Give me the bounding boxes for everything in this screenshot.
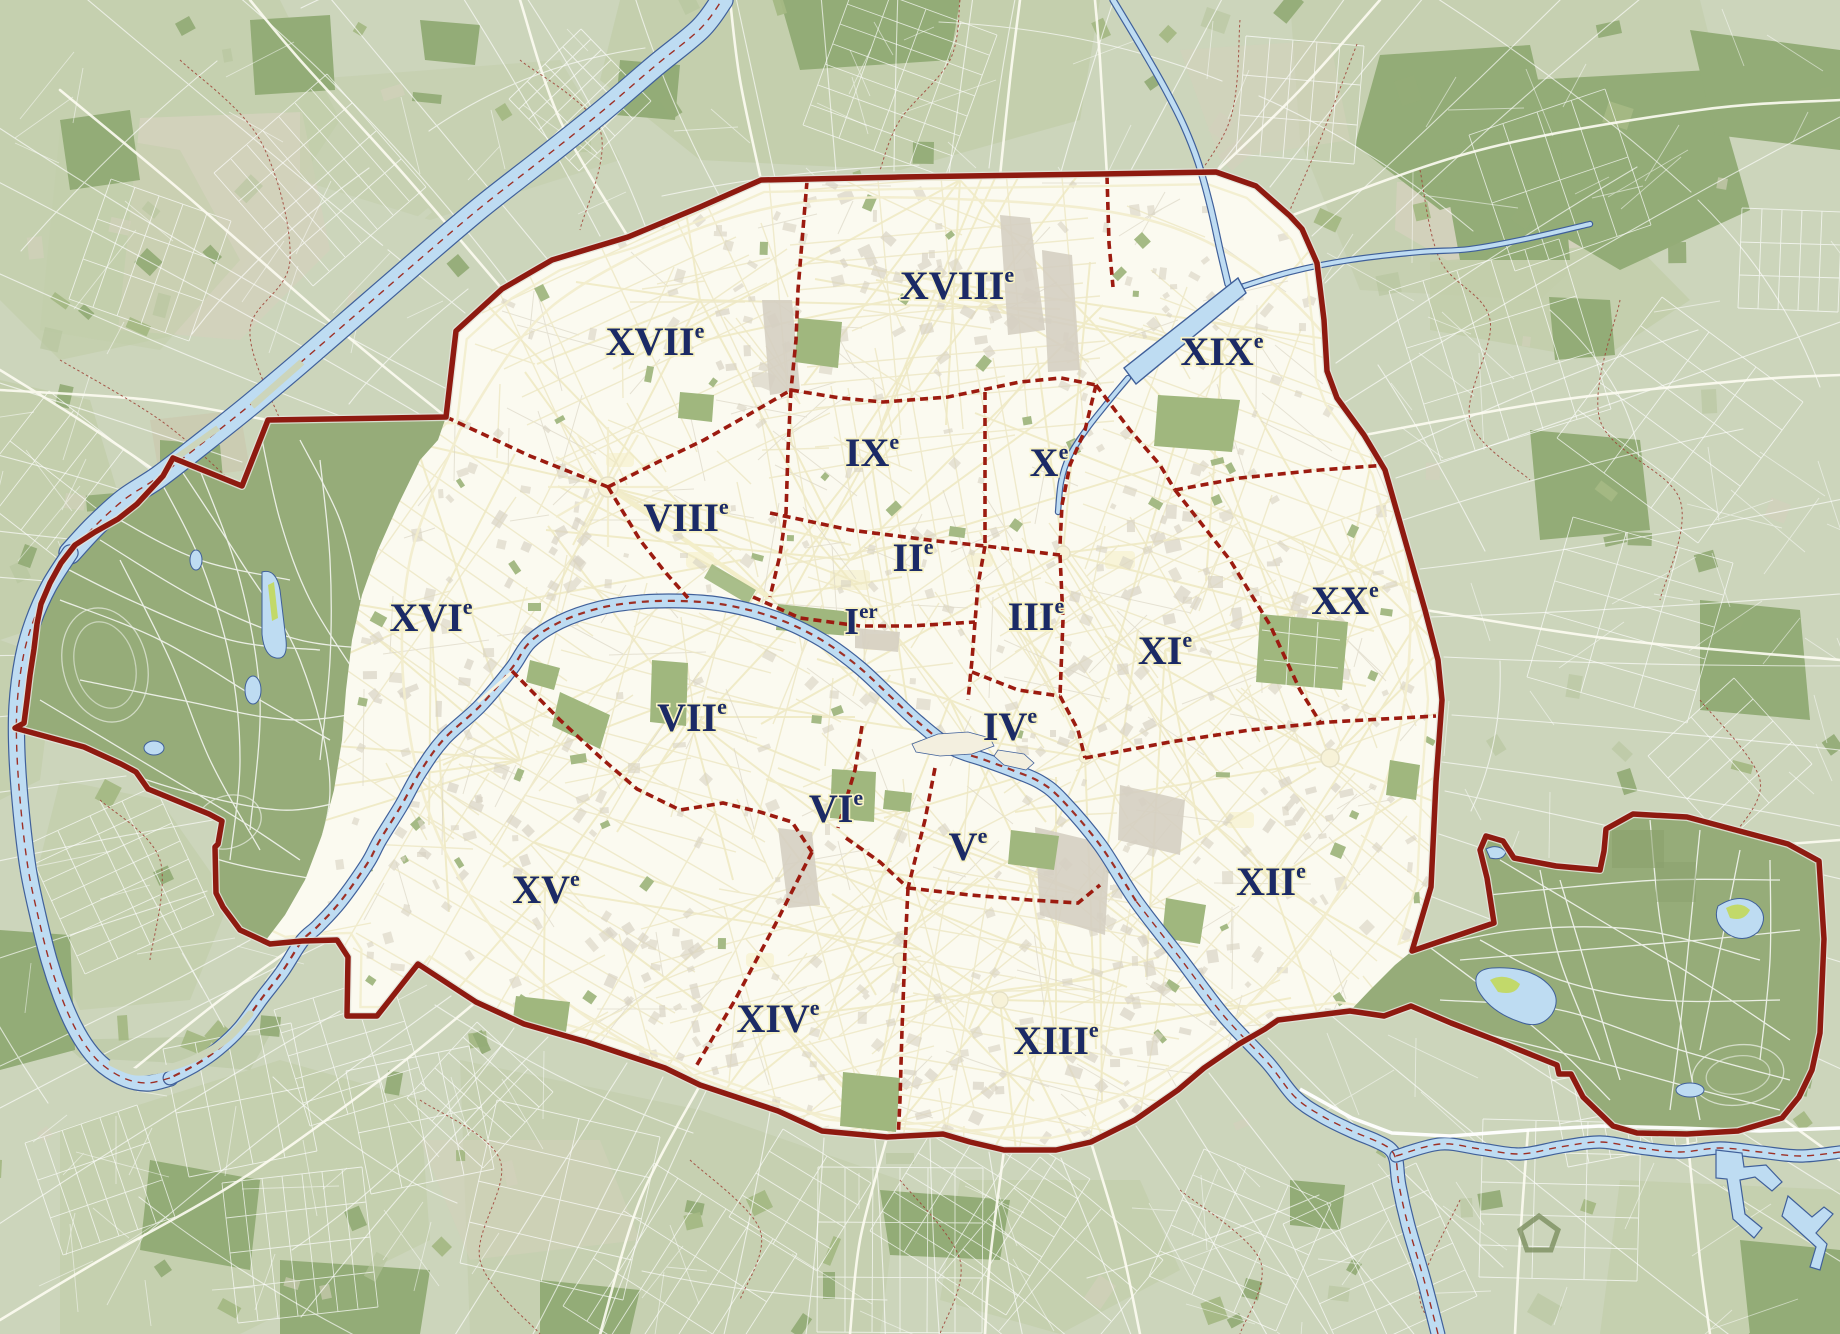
- svg-text:XVIe: XVIe: [389, 594, 472, 640]
- svg-text:VIIe: VIIe: [657, 694, 727, 740]
- svg-text:VIIIe: VIIIe: [643, 494, 729, 540]
- svg-text:XVe: XVe: [512, 866, 580, 912]
- svg-text:XIIe: XIIe: [1236, 858, 1306, 904]
- svg-text:XVIIe: XVIIe: [606, 318, 705, 364]
- svg-text:XIXe: XIXe: [1180, 328, 1263, 374]
- svg-text:XVIIIe: XVIIIe: [900, 262, 1014, 308]
- svg-text:XIVe: XIVe: [736, 995, 819, 1041]
- svg-text:XXe: XXe: [1311, 577, 1379, 623]
- svg-text:XIIIe: XIIIe: [1013, 1017, 1099, 1063]
